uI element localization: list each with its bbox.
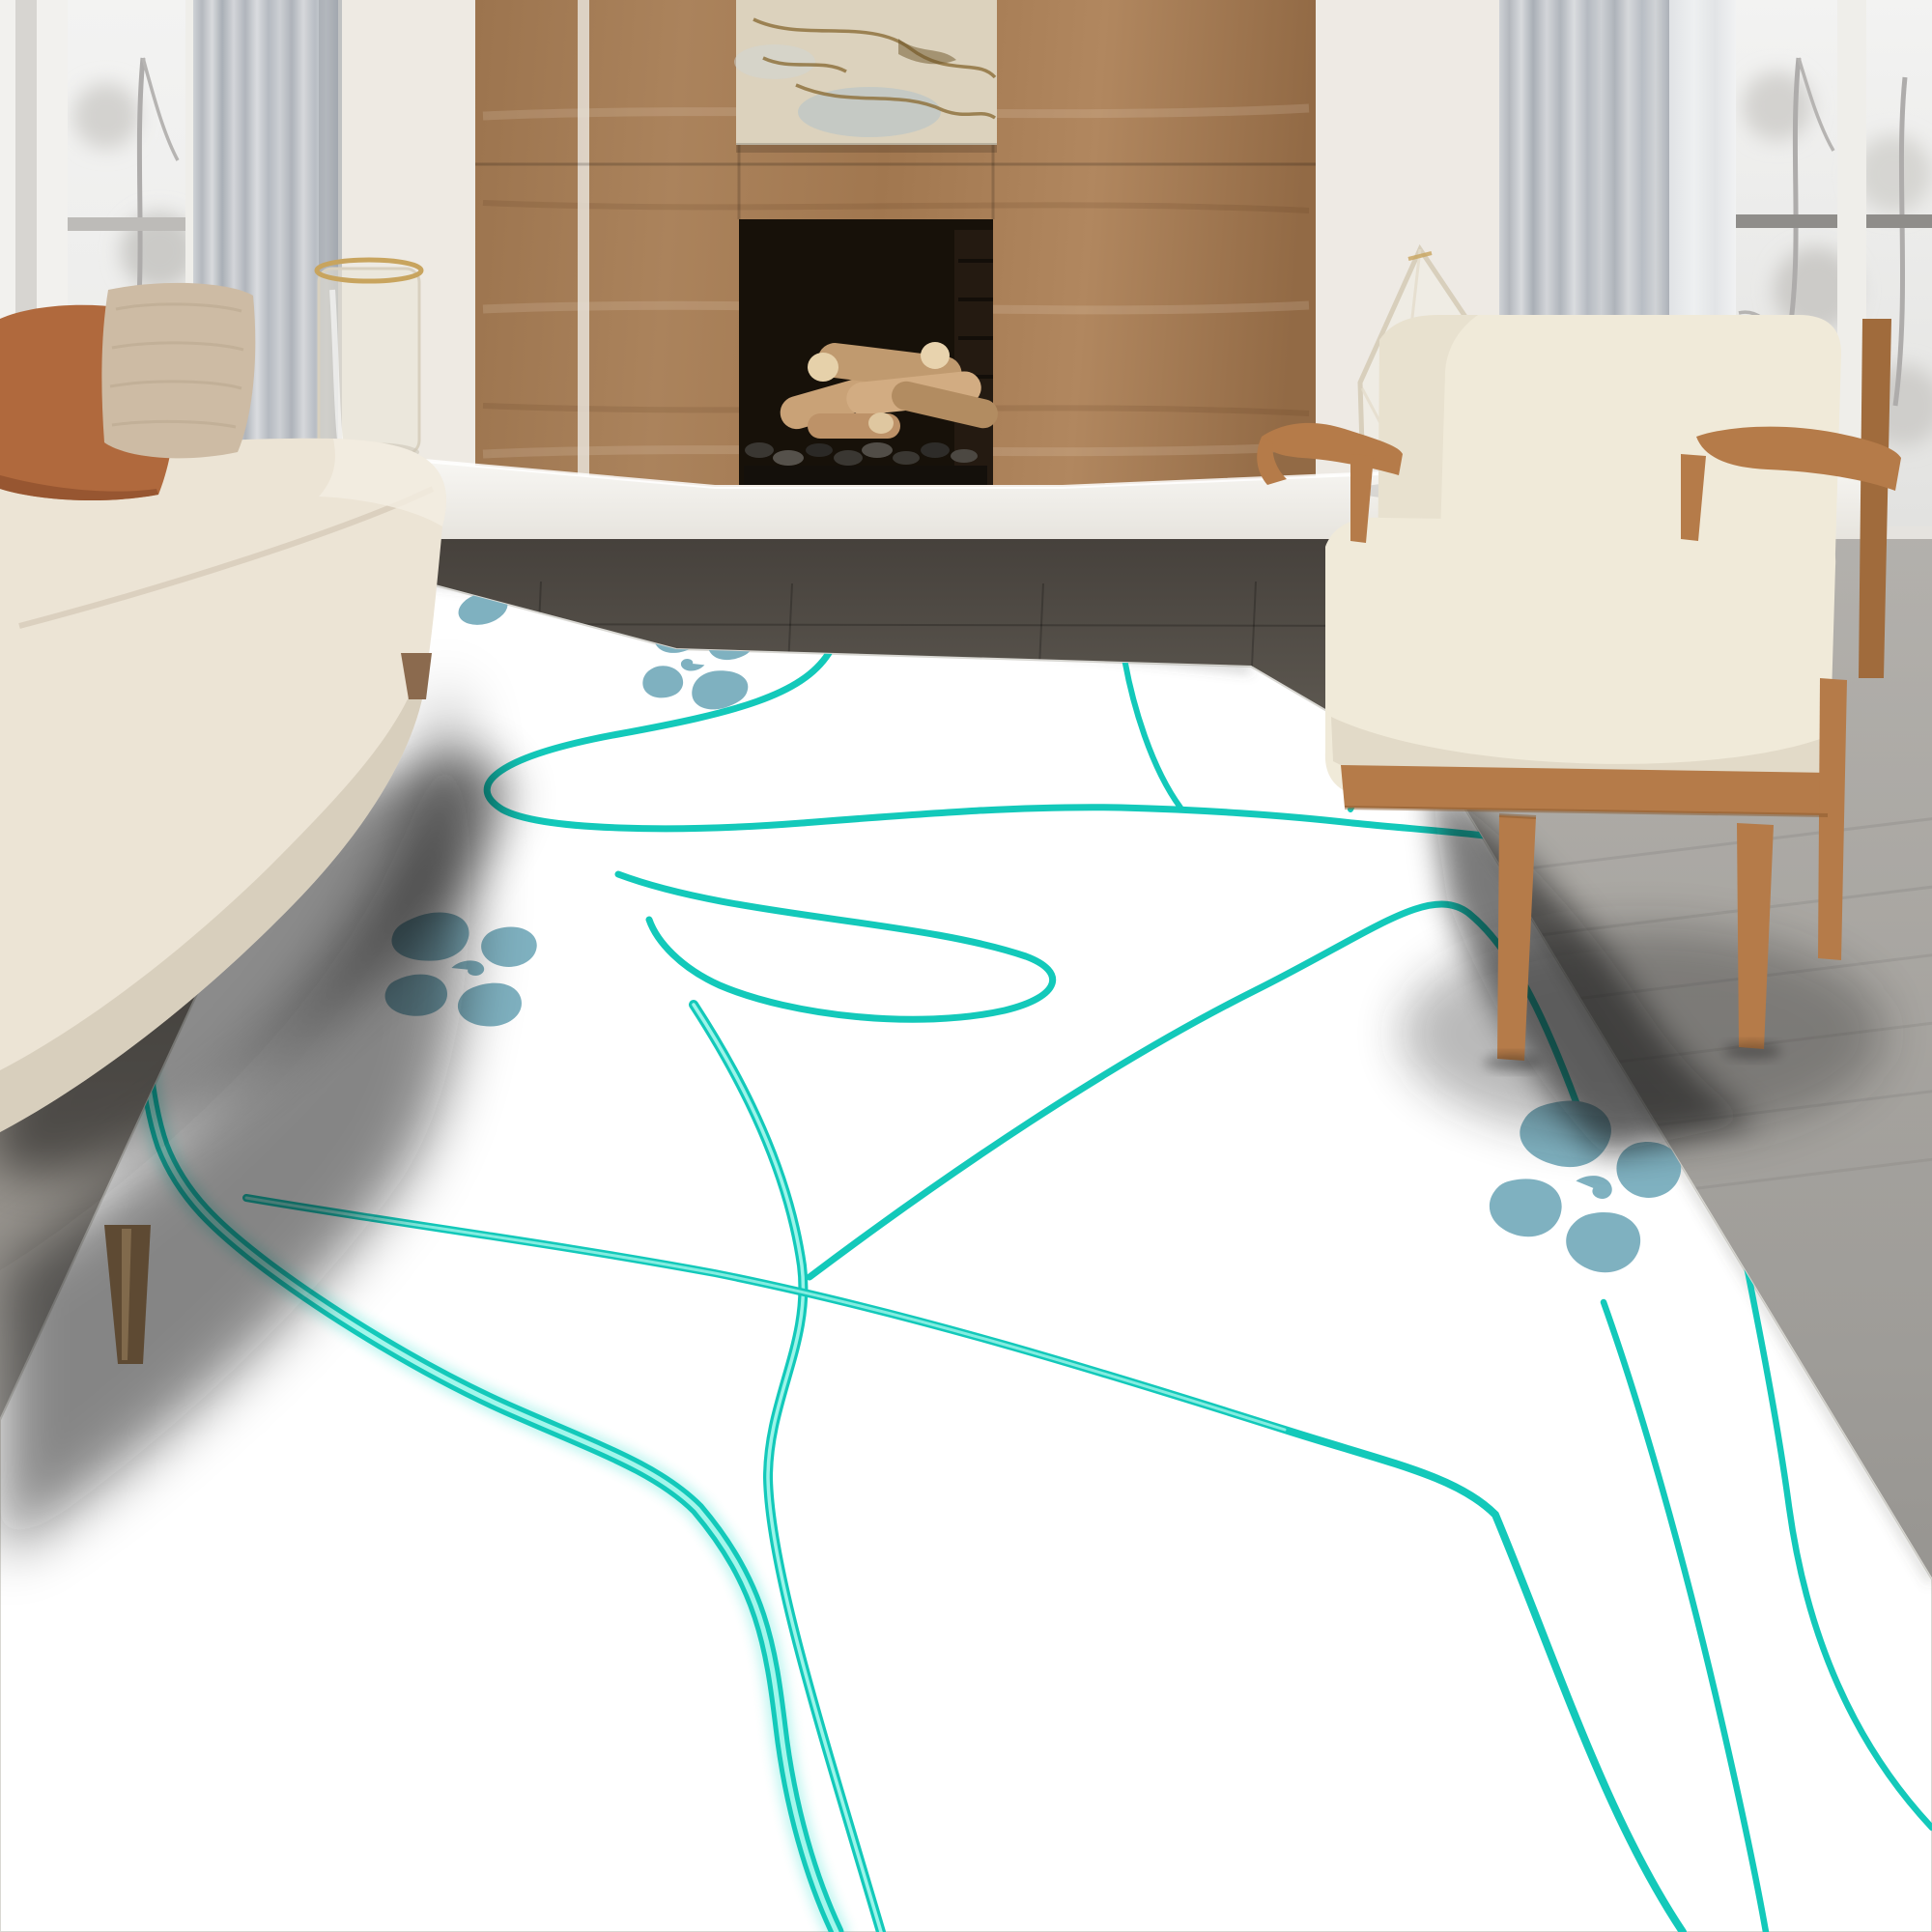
firebox-inner-wall [954, 230, 993, 485]
left-window-sash-bar [68, 217, 187, 231]
artwork-shadow [736, 143, 997, 153]
right-window-sash-bar [1732, 214, 1932, 228]
scene-canvas [0, 0, 1932, 1932]
fireplace-artwork [734, 0, 997, 153]
fireplace [475, 0, 1316, 546]
glass-hurricane-vase [317, 260, 421, 462]
firebox [739, 219, 1001, 485]
leg-contact-shadow-1 [1484, 1055, 1542, 1070]
wood-panel-reveal [578, 0, 589, 546]
leg-contact-shadow-2 [1723, 1043, 1781, 1059]
armchair-shadow-soft [1401, 927, 1884, 1140]
living-room-photo [0, 0, 1932, 1932]
